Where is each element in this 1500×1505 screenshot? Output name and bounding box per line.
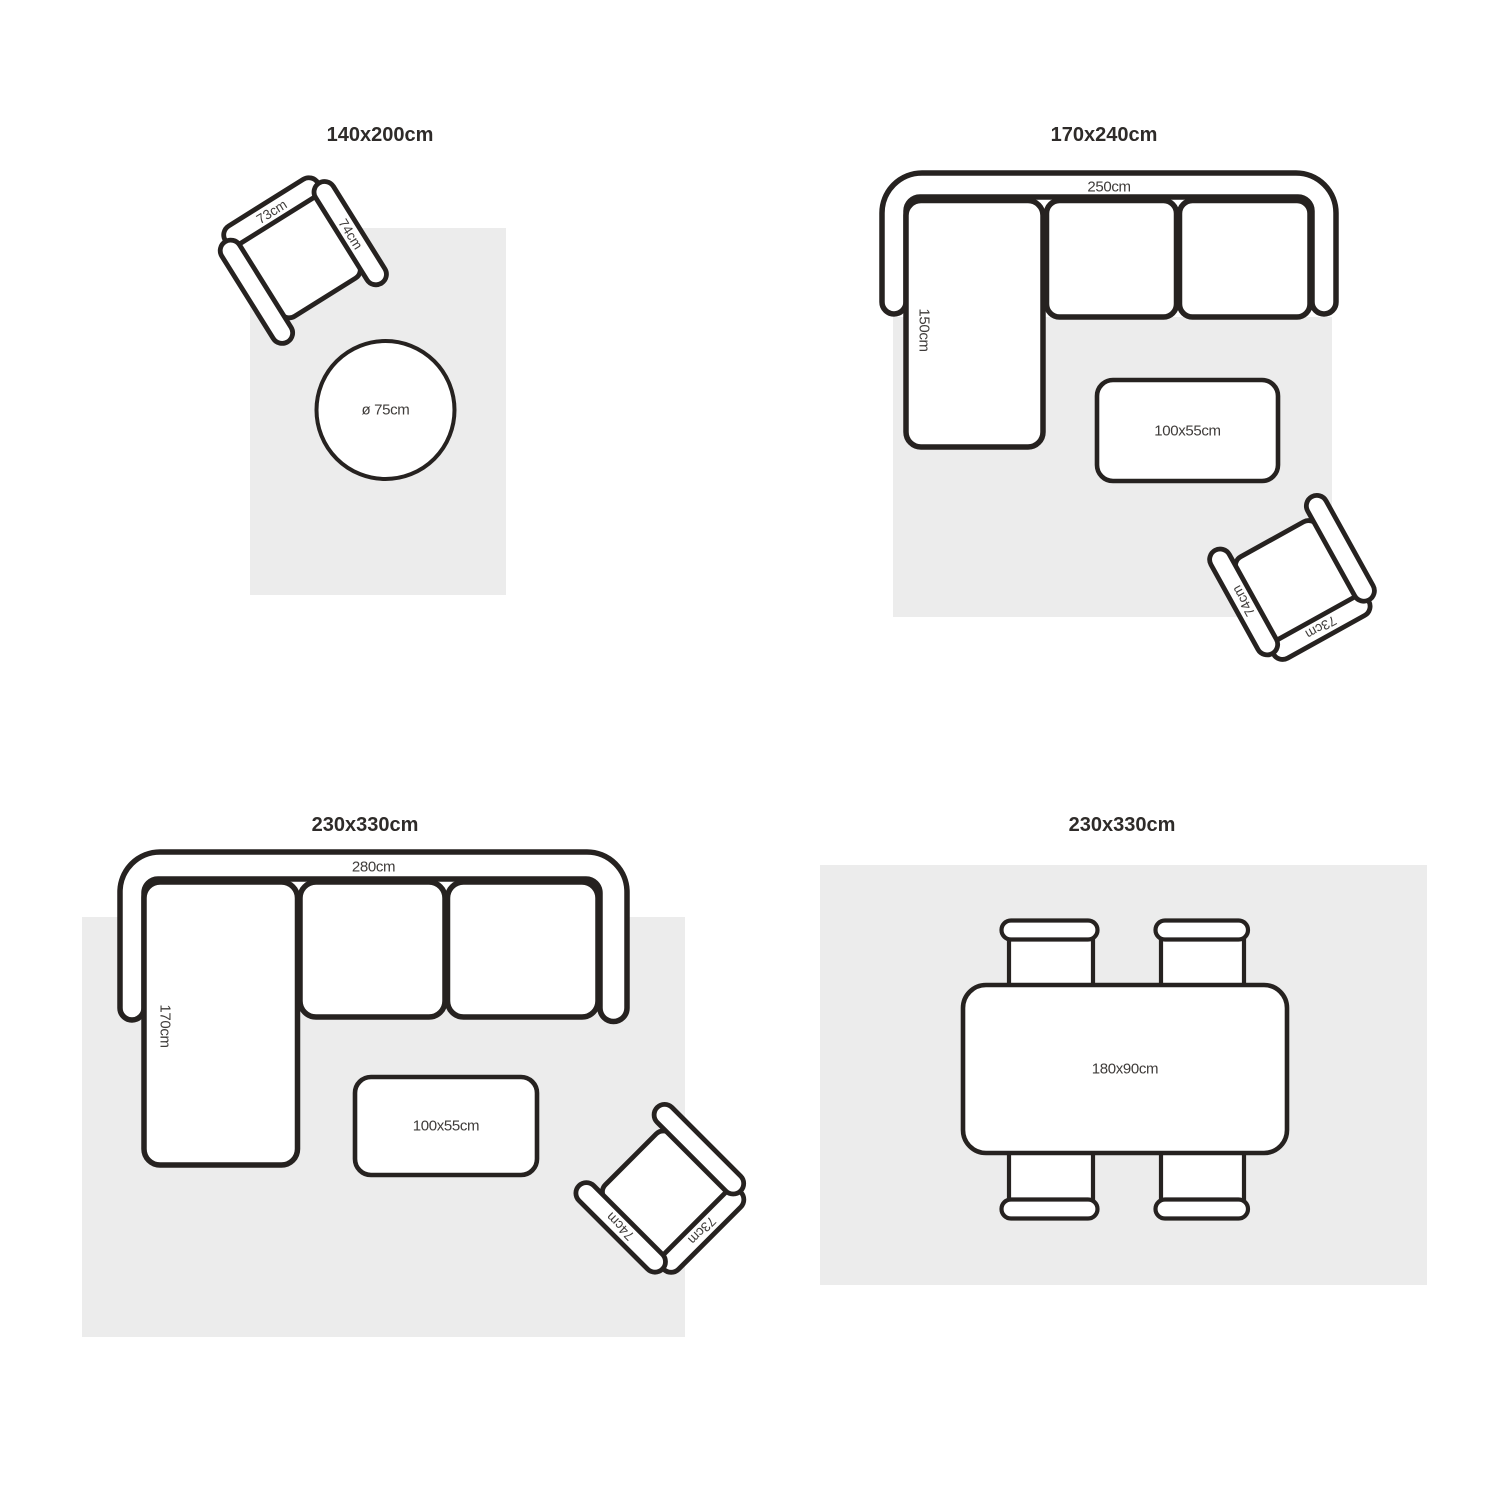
svg-text:100x55cm: 100x55cm bbox=[1154, 423, 1220, 440]
svg-text:180x90cm: 180x90cm bbox=[1092, 1061, 1158, 1078]
svg-text:100x55cm: 100x55cm bbox=[413, 1118, 479, 1135]
svg-text:140x200cm: 140x200cm bbox=[327, 124, 434, 146]
svg-text:230x330cm: 230x330cm bbox=[312, 814, 419, 836]
svg-text:280cm: 280cm bbox=[352, 859, 395, 876]
svg-text:250cm: 250cm bbox=[1087, 179, 1130, 196]
svg-text:ø 75cm: ø 75cm bbox=[362, 402, 410, 419]
svg-text:170cm: 170cm bbox=[157, 1004, 174, 1047]
svg-text:230x330cm: 230x330cm bbox=[1069, 814, 1176, 836]
svg-text:170x240cm: 170x240cm bbox=[1051, 124, 1158, 146]
svg-text:150cm: 150cm bbox=[916, 308, 933, 351]
